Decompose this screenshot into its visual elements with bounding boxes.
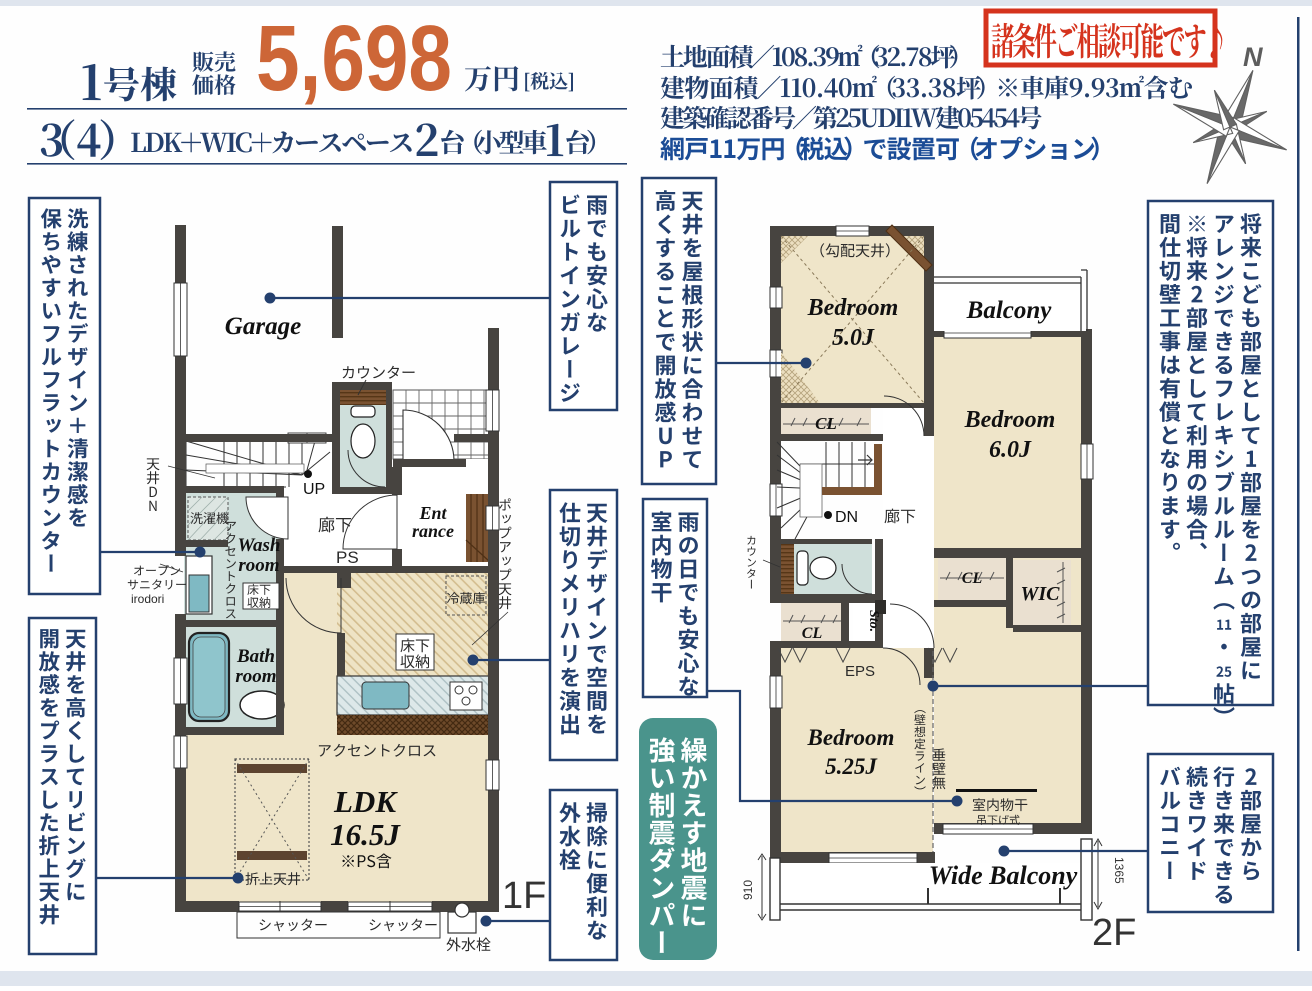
- svg-text:5.25J: 5.25J: [825, 754, 878, 779]
- svg-text:Ent: Ent: [418, 503, 447, 523]
- svg-text:1365: 1365: [1112, 857, 1126, 884]
- svg-text:WIC: WIC: [1021, 583, 1061, 605]
- svg-text:Bedroom: Bedroom: [807, 295, 899, 321]
- svg-text:Wide Balcony: Wide Balcony: [929, 861, 1078, 890]
- svg-text:Bedroom: Bedroom: [964, 407, 1056, 433]
- svg-text:Sto.: Sto.: [866, 610, 881, 632]
- svg-text:5.0J: 5.0J: [832, 325, 875, 351]
- svg-text:room: room: [238, 555, 279, 576]
- svg-text:UP: UP: [303, 481, 325, 498]
- svg-text:Garage: Garage: [225, 313, 301, 340]
- svg-text:CL: CL: [802, 625, 823, 642]
- svg-text:Balcony: Balcony: [966, 297, 1053, 324]
- svg-text:rance: rance: [412, 521, 454, 541]
- svg-text:16.5J: 16.5J: [330, 817, 401, 852]
- svg-text:910: 910: [741, 880, 755, 900]
- svg-text:Bath: Bath: [236, 646, 275, 667]
- svg-text:2F: 2F: [1092, 912, 1136, 954]
- svg-text:irodori: irodori: [131, 592, 164, 606]
- svg-text:PS: PS: [336, 548, 359, 567]
- svg-text:N: N: [1243, 42, 1263, 72]
- svg-text:CL: CL: [815, 414, 837, 433]
- svg-text:5,698: 5,698: [256, 6, 452, 110]
- svg-text:CL: CL: [962, 570, 983, 587]
- svg-text:Bedroom: Bedroom: [807, 725, 895, 750]
- svg-text:DN: DN: [835, 509, 858, 526]
- svg-text:1F: 1F: [502, 875, 546, 917]
- svg-text:LDK: LDK: [333, 784, 398, 819]
- svg-text:room: room: [235, 666, 276, 687]
- svg-text:6.0J: 6.0J: [989, 437, 1032, 463]
- svg-text:Wash: Wash: [238, 535, 281, 556]
- svg-text:EPS: EPS: [845, 663, 875, 680]
